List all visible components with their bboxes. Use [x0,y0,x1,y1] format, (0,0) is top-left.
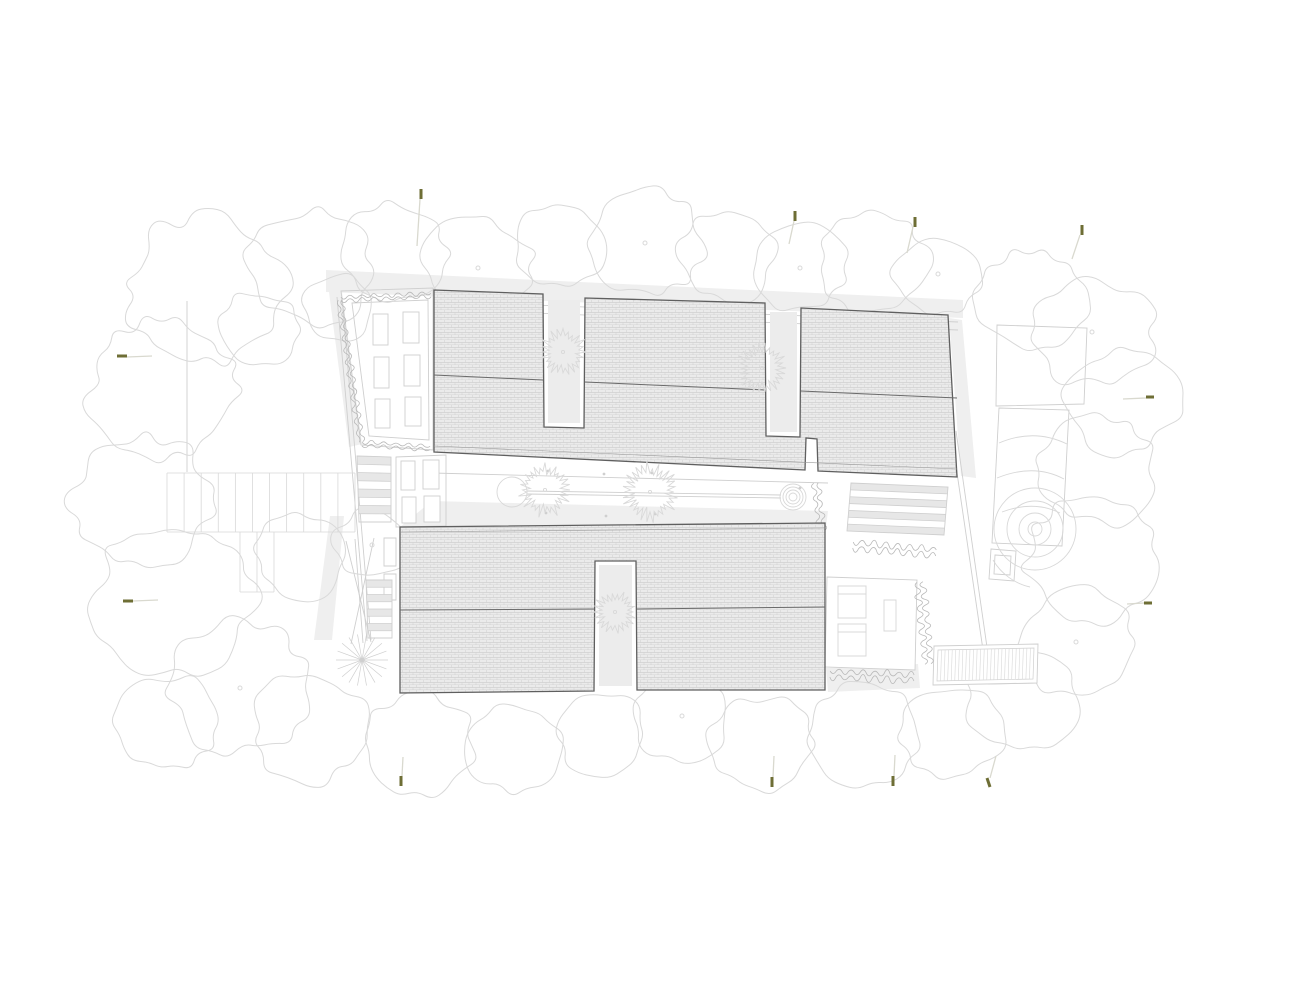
tree-canopies [64,186,1183,798]
survey-markers [117,189,1154,787]
site-plan-drawing [0,0,1294,1000]
roof-plan-canvas [0,0,1294,1000]
